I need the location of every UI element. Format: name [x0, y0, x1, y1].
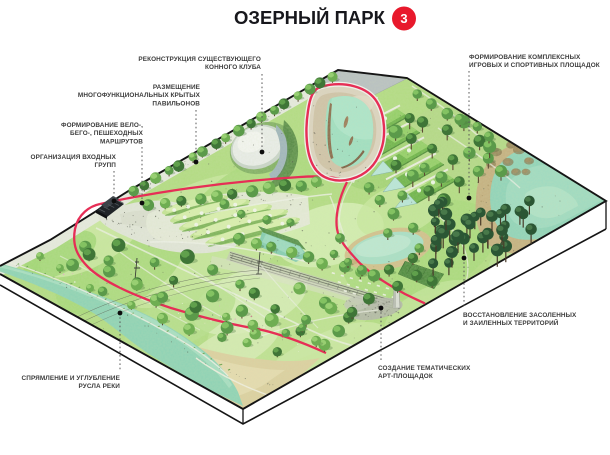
- svg-text:ФОРМИРОВАНИЕ КОМПЛЕКСНЫХИГРОВЫ: ФОРМИРОВАНИЕ КОМПЛЕКСНЫХИГРОВЫХ И СПОРТИ…: [469, 54, 600, 69]
- svg-text:3: 3: [400, 11, 407, 26]
- svg-text:ОЗЕРНЫЙ ПАРК: ОЗЕРНЫЙ ПАРК: [234, 7, 386, 28]
